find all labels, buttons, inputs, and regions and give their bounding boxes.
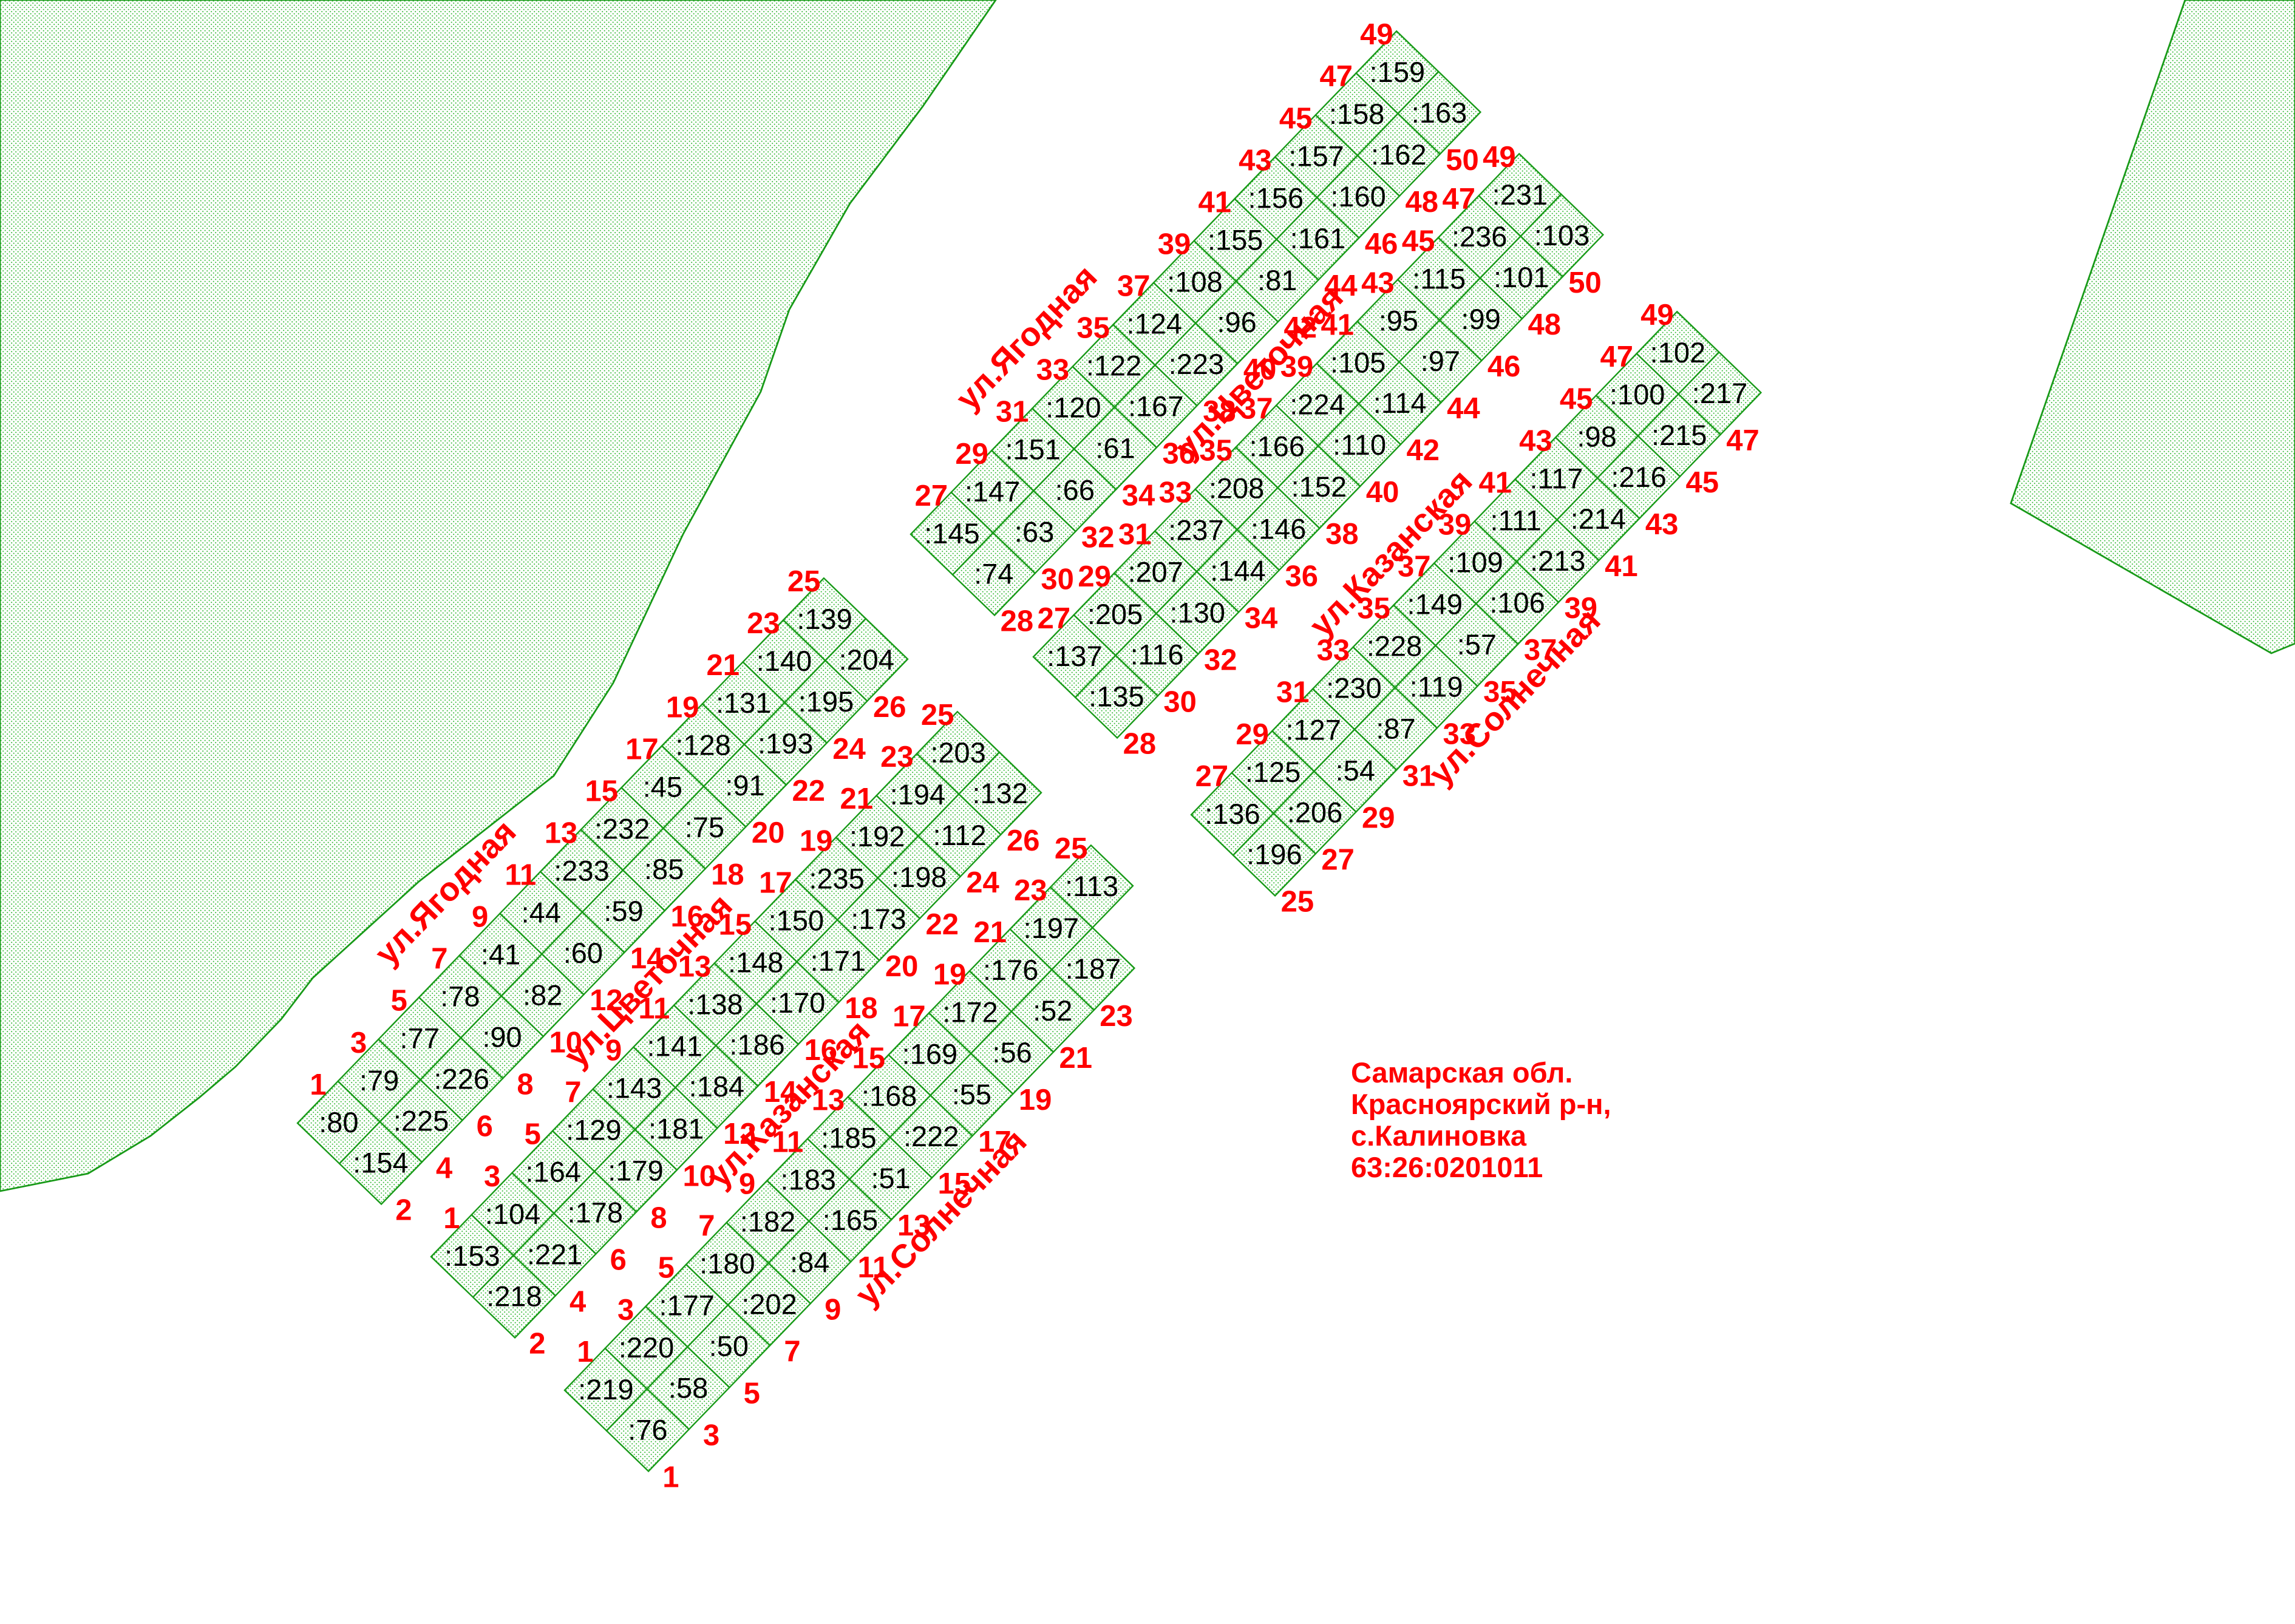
parcel-cadastral-label: :105 [1330, 346, 1385, 378]
parcel-cadastral-label: :79 [359, 1064, 399, 1096]
parcel-cadastral-label: :182 [740, 1206, 795, 1238]
parcel-street-number: 26 [1007, 824, 1040, 857]
parcel-cadastral-label: :136 [1205, 798, 1260, 830]
parcel-cadastral-label: :223 [1169, 348, 1224, 380]
parcel-cadastral-label: :141 [647, 1030, 702, 1062]
parcel-cadastral-label: :125 [1245, 756, 1300, 788]
parcel-cadastral-label: :177 [659, 1289, 714, 1322]
parcel-cadastral-label: :85 [644, 853, 684, 885]
parcel-street-number: 3 [617, 1294, 634, 1327]
parcel-cadastral-label: :128 [675, 729, 730, 761]
parcel-street-number: 32 [1204, 644, 1237, 676]
parcel-cadastral-label: :55 [952, 1078, 991, 1110]
parcel-street-number: 3 [350, 1027, 367, 1059]
parcel-cadastral-label: :178 [568, 1196, 623, 1228]
parcel-street-number: 47 [1319, 60, 1353, 93]
parcel-street-number: 5 [391, 985, 407, 1018]
parcel-street-number: 23 [1014, 874, 1047, 907]
parcel-street-number: 47 [1726, 424, 1759, 457]
parcel-cadastral-label: :81 [1257, 264, 1297, 296]
parcel-cadastral-label: :226 [434, 1062, 489, 1095]
parcel-street-number: 27 [915, 480, 948, 512]
parcel-cadastral-label: :130 [1170, 596, 1225, 628]
parcel-street-number: 27 [1321, 843, 1355, 876]
parcel-cadastral-label: :183 [781, 1164, 836, 1196]
parcel-cadastral-label: :116 [1130, 638, 1184, 670]
parcel-cadastral-label: :127 [1285, 714, 1341, 746]
parcel-street-number: 28 [1001, 605, 1034, 638]
parcel-street-number: 8 [517, 1068, 533, 1101]
parcel-cadastral-label: :176 [983, 954, 1038, 986]
parcel-cadastral-label: :120 [1045, 392, 1101, 424]
parcel-cadastral-label: :186 [729, 1028, 784, 1061]
parcel-cadastral-label: :213 [1530, 545, 1585, 577]
parcel-street-number: 25 [1281, 886, 1314, 919]
parcel-cadastral-label: :220 [619, 1331, 674, 1364]
parcel-cadastral-label: :57 [1457, 628, 1497, 661]
parcel-cadastral-label: :124 [1127, 308, 1182, 340]
parcel-street-number: 4 [436, 1152, 452, 1184]
parcel-street-number: 29 [1236, 718, 1269, 751]
parcel-cadastral-label: :168 [862, 1079, 917, 1112]
parcel-street-number: 1 [310, 1069, 326, 1101]
parcel-cadastral-label: :215 [1651, 419, 1707, 451]
parcel-street-number: 18 [711, 858, 744, 891]
parcel-street-number: 22 [792, 775, 826, 807]
parcel-cadastral-label: :98 [1577, 420, 1616, 452]
parcel-street-number: 34 [1245, 602, 1278, 634]
parcel-cadastral-label: :103 [1534, 219, 1589, 251]
parcel-cadastral-label: :137 [1047, 640, 1102, 672]
parcel-cadastral-label: :108 [1167, 266, 1222, 298]
parcel-cadastral-label: :149 [1407, 588, 1463, 620]
parcel-cadastral-label: :230 [1326, 672, 1381, 704]
parcel-street-number: 6 [477, 1110, 493, 1143]
parcel-cadastral-label: :119 [1410, 670, 1463, 702]
parcel-cadastral-label: :61 [1095, 432, 1135, 464]
legend-line: 63:26:0201011 [1351, 1151, 1543, 1183]
parcel-cadastral-label: :147 [965, 475, 1020, 508]
parcel-cadastral-label: :155 [1208, 223, 1263, 256]
parcel-cadastral-label: :233 [554, 855, 609, 887]
parcel-street-number: 23 [1100, 1000, 1133, 1033]
parcel-cadastral-label: :56 [992, 1036, 1032, 1069]
parcel-street-number: 39 [1158, 228, 1191, 261]
parcel-street-number: 5 [525, 1118, 541, 1151]
parcel-cadastral-label: :164 [525, 1156, 580, 1188]
parcel-street-number: 3 [703, 1419, 719, 1452]
parcel-street-number: 45 [1402, 225, 1435, 257]
parcel-cadastral-label: :102 [1650, 336, 1705, 369]
parcel-cadastral-label: :153 [444, 1240, 500, 1272]
parcel-cadastral-label: :180 [699, 1248, 755, 1280]
parcel-cadastral-label: :169 [902, 1038, 957, 1070]
parcel-cadastral-label: :185 [821, 1122, 876, 1154]
parcel-cadastral-label: :90 [482, 1021, 522, 1053]
parcel-street-number: 19 [1019, 1084, 1052, 1116]
parcel-cadastral-label: :129 [566, 1114, 621, 1146]
parcel-street-number: 27 [1038, 602, 1071, 635]
legend-line: Самарская обл. [1351, 1056, 1572, 1089]
parcel-street-number: 35 [1076, 312, 1110, 345]
parcel-street-number: 29 [955, 438, 988, 471]
parcel-cadastral-label: :99 [1461, 303, 1500, 335]
parcel-cadastral-label: :152 [1291, 471, 1347, 503]
parcel-street-number: 46 [1487, 350, 1521, 383]
parcel-cadastral-label: :162 [1371, 138, 1426, 171]
parcel-cadastral-label: :150 [769, 904, 824, 936]
parcel-cadastral-label: :237 [1168, 514, 1223, 546]
parcel-cadastral-label: :179 [608, 1154, 663, 1186]
parcel-cadastral-label: :112 [933, 819, 987, 851]
parcel-street-number: 23 [747, 607, 780, 640]
parcel-cadastral-label: :131 [716, 687, 771, 719]
parcel-cadastral-label: :63 [1015, 515, 1054, 548]
parcel-street-number: 20 [752, 817, 785, 849]
parcel-cadastral-label: :160 [1330, 180, 1385, 212]
parcel-street-number: 7 [784, 1335, 800, 1368]
parcel-cadastral-label: :204 [838, 644, 894, 676]
parcel-cadastral-label: :138 [687, 988, 743, 1021]
parcel-cadastral-label: :97 [1421, 345, 1460, 377]
parcel-cadastral-label: :170 [770, 987, 825, 1019]
parcel-cadastral-label: :157 [1288, 140, 1344, 172]
parcel-street-number: 31 [996, 396, 1029, 429]
parcel-street-number: 28 [1123, 728, 1157, 761]
parcel-cadastral-label: :41 [481, 939, 520, 971]
parcel-cadastral-label: :236 [1452, 220, 1507, 253]
parcel-cadastral-label: :44 [522, 897, 561, 929]
parcel-cadastral-label: :100 [1610, 378, 1665, 410]
parcel-cadastral-label: :192 [849, 820, 905, 852]
parcel-street-number: 29 [1078, 560, 1111, 593]
parcel-cadastral-label: :135 [1089, 681, 1144, 713]
parcel-cadastral-label: :216 [1611, 461, 1666, 493]
parcel-street-number: 43 [1645, 508, 1679, 541]
parcel-cadastral-label: :91 [725, 769, 764, 801]
parcel-cadastral-label: :217 [1692, 377, 1747, 409]
parcel-cadastral-label: :181 [648, 1112, 704, 1144]
parcel-cadastral-label: :115 [1412, 262, 1466, 294]
parcel-cadastral-label: :187 [1066, 953, 1121, 985]
parcel-cadastral-label: :221 [527, 1238, 582, 1270]
parcel-street-number: 25 [787, 565, 821, 598]
parcel-cadastral-label: :184 [689, 1070, 744, 1102]
parcel-street-number: 47 [1442, 183, 1475, 216]
parcel-street-number: 22 [926, 908, 959, 941]
parcel-cadastral-label: :218 [486, 1280, 542, 1313]
parcel-cadastral-label: :84 [790, 1246, 829, 1278]
parcel-street-number: 2 [529, 1328, 545, 1361]
parcel-cadastral-label: :82 [523, 979, 562, 1011]
parcel-cadastral-label: :96 [1217, 306, 1256, 338]
parcel-street-number: 15 [585, 775, 618, 807]
parcel-street-number: 4 [569, 1285, 586, 1318]
parcel-street-number: 29 [1362, 801, 1395, 834]
parcel-street-number: 45 [1279, 102, 1313, 135]
parcel-street-number: 19 [800, 824, 833, 857]
parcel-cadastral-label: :111 [1490, 504, 1542, 536]
parcel-street-number: 21 [840, 783, 873, 815]
parcel-cadastral-label: :206 [1287, 796, 1342, 828]
parcel-cadastral-label: :214 [1571, 503, 1626, 535]
parcel-street-number: 44 [1447, 392, 1480, 425]
parcel-street-number: 11 [505, 859, 536, 892]
parcel-cadastral-label: :52 [1033, 994, 1072, 1027]
cadastral-map: :14527:14729:15131:12033:12235:12437:108… [0, 0, 2295, 1624]
parcel-street-number: 37 [1117, 270, 1151, 303]
parcel-street-number: 50 [1446, 144, 1479, 177]
parcel-cadastral-label: :165 [823, 1204, 878, 1236]
parcel-street-number: 30 [1163, 685, 1197, 718]
parcel-cadastral-label: :194 [890, 778, 945, 810]
parcel-street-number: 30 [1041, 563, 1074, 596]
parcel-cadastral-label: :146 [1251, 512, 1306, 545]
parcel-cadastral-label: :197 [1024, 912, 1079, 944]
parcel-street-number: 1 [662, 1461, 679, 1494]
parcel-street-number: 42 [1406, 434, 1440, 467]
parcel-cadastral-label: :117 [1529, 462, 1583, 494]
parcel-street-number: 21 [1059, 1042, 1093, 1075]
parcel-cadastral-label: :159 [1370, 56, 1425, 88]
parcel-cadastral-label: :51 [871, 1162, 910, 1194]
parcel-cadastral-label: :151 [1005, 433, 1060, 466]
parcel-street-number: 25 [921, 699, 954, 732]
parcel-street-number: 41 [1605, 550, 1638, 583]
parcel-cadastral-label: :205 [1087, 598, 1143, 630]
parcel-cadastral-label: :143 [607, 1072, 662, 1104]
parcel-street-number: 41 [1198, 186, 1231, 219]
parcel-cadastral-label: :232 [594, 812, 650, 844]
parcel-street-number: 36 [1285, 560, 1318, 593]
parcel-street-number: 24 [966, 866, 999, 899]
parcel-cadastral-label: :87 [1376, 712, 1415, 744]
parcel-cadastral-label: :45 [643, 770, 682, 803]
parcel-street-number: 20 [885, 950, 919, 983]
parcel-street-number: 49 [1360, 18, 1393, 51]
parcel-street-number: 9 [472, 901, 488, 934]
parcel-street-number: 46 [1365, 228, 1398, 260]
parcel-street-number: 45 [1560, 382, 1593, 415]
parcel-cadastral-label: :161 [1290, 222, 1345, 254]
parcel-street-number: 1 [443, 1202, 460, 1235]
parcel-street-number: 32 [1081, 521, 1115, 554]
parcel-cadastral-label: :202 [741, 1288, 797, 1320]
parcel-street-number: 31 [1276, 676, 1310, 709]
parcel-cadastral-label: :75 [685, 811, 724, 843]
parcel-street-number: 31 [1118, 518, 1152, 551]
parcel-cadastral-label: :54 [1336, 754, 1375, 786]
parcel-street-number: 19 [933, 958, 967, 991]
parcel-cadastral-label: :95 [1379, 304, 1418, 336]
parcel-cadastral-label: :145 [924, 517, 979, 549]
parcel-street-number: 17 [759, 866, 792, 899]
parcel-street-number: 38 [1325, 518, 1359, 551]
parcel-cadastral-label: :173 [851, 903, 906, 935]
parcel-street-number: 41 [1478, 466, 1512, 499]
parcel-street-number: 43 [1519, 424, 1552, 457]
parcel-cadastral-label: :76 [628, 1414, 667, 1446]
parcel-street-number: 9 [824, 1293, 841, 1326]
parcel-cadastral-label: :224 [1290, 389, 1345, 421]
parcel-cadastral-label: :58 [668, 1371, 708, 1404]
parcel-street-number: 47 [1600, 341, 1633, 373]
parcel-street-number: 50 [1568, 267, 1602, 299]
parcel-cadastral-label: :139 [797, 603, 852, 635]
parcel-cadastral-label: :231 [1492, 178, 1548, 211]
parcel-cadastral-label: :196 [1246, 838, 1302, 871]
parcel-street-number: 48 [1528, 308, 1562, 341]
parcel-street-number: 21 [706, 649, 739, 682]
parcel-street-number: 1 [577, 1336, 593, 1368]
parcel-cadastral-label: :59 [603, 895, 643, 927]
parcel-cadastral-label: :77 [400, 1022, 440, 1055]
parcel-street-number: 23 [880, 741, 914, 773]
parcel-street-number: 49 [1483, 141, 1516, 174]
parcel-cadastral-label: :156 [1248, 182, 1304, 214]
parcel-cadastral-label: :50 [709, 1330, 749, 1362]
parcel-cadastral-label: :207 [1127, 556, 1183, 588]
parcel-cadastral-label: :222 [903, 1120, 959, 1152]
parcel-cadastral-label: :158 [1329, 98, 1384, 130]
parcel-street-number: 21 [973, 916, 1007, 949]
parcel-street-number: 34 [1122, 479, 1155, 512]
parcel-street-number: 7 [565, 1076, 581, 1109]
parcel-street-number: 43 [1239, 144, 1272, 177]
parcel-cadastral-label: :154 [353, 1147, 408, 1179]
parcel-street-number: 6 [610, 1243, 627, 1276]
parcel-cadastral-label: :122 [1086, 350, 1141, 382]
parcel-cadastral-label: :140 [756, 645, 812, 677]
parcel-street-number: 48 [1406, 186, 1439, 219]
parcel-cadastral-label: :219 [578, 1373, 633, 1405]
legend-line: с.Калиновка [1351, 1119, 1527, 1152]
parcel-cadastral-label: :163 [1412, 97, 1467, 129]
parcel-cadastral-label: :114 [1373, 387, 1427, 419]
parcel-cadastral-label: :172 [942, 996, 998, 1028]
parcel-cadastral-label: :101 [1494, 261, 1549, 293]
parcel-cadastral-label: :166 [1249, 430, 1305, 463]
parcel-cadastral-label: :109 [1447, 546, 1503, 579]
parcel-cadastral-label: :225 [393, 1104, 449, 1136]
parcel-street-number: 19 [666, 691, 699, 724]
parcel-street-number: 5 [658, 1252, 675, 1285]
parcel-cadastral-label: :208 [1209, 472, 1264, 505]
parcel-cadastral-label: :110 [1333, 429, 1386, 461]
parcel-street-number: 33 [1159, 477, 1192, 509]
parcel-street-number: 17 [625, 733, 659, 766]
parcel-cadastral-label: :195 [798, 685, 854, 718]
parcel-street-number: 2 [395, 1194, 412, 1227]
parcel-cadastral-label: :203 [930, 736, 985, 769]
parcel-street-number: 27 [1195, 760, 1229, 793]
parcel-cadastral-label: :66 [1055, 474, 1095, 506]
parcel-cadastral-label: :80 [319, 1106, 358, 1138]
parcel-cadastral-label: :171 [811, 945, 866, 977]
parcel-cadastral-label: :78 [440, 980, 480, 1013]
parcel-street-number: 25 [1055, 832, 1088, 865]
legend-line: Красноярский р-н, [1351, 1088, 1611, 1120]
parcel-cadastral-label: :106 [1489, 586, 1545, 619]
parcel-street-number: 26 [873, 691, 906, 724]
parcel-street-number: 8 [650, 1201, 667, 1234]
parcel-cadastral-label: :60 [563, 937, 603, 969]
parcel-street-number: 49 [1640, 299, 1674, 331]
parcel-street-number: 13 [545, 817, 578, 850]
parcel-street-number: 5 [744, 1377, 760, 1410]
parcel-cadastral-label: :198 [891, 861, 947, 893]
parcel-cadastral-label: :132 [972, 777, 1027, 809]
parcel-cadastral-label: :193 [758, 727, 813, 759]
parcel-street-number: 7 [431, 943, 447, 976]
parcel-street-number: 43 [1361, 267, 1395, 299]
parcel-cadastral-label: :144 [1210, 554, 1265, 586]
parcel-cadastral-label: :235 [809, 862, 864, 894]
parcel-cadastral-label: :148 [728, 946, 783, 978]
parcel-cadastral-label: :74 [974, 558, 1013, 590]
parcel-street-number: 17 [892, 1000, 926, 1033]
parcel-street-number: 40 [1366, 476, 1399, 509]
parcel-street-number: 45 [1686, 466, 1719, 499]
parcel-cadastral-label: :113 [1065, 870, 1118, 902]
parcel-cadastral-label: :228 [1367, 630, 1422, 662]
parcel-cadastral-label: :167 [1128, 390, 1183, 422]
parcel-cadastral-label: :104 [485, 1198, 540, 1230]
parcel-street-number: 33 [1036, 354, 1070, 387]
parcel-street-number: 24 [832, 733, 866, 766]
parcel-street-number: 3 [484, 1160, 500, 1193]
parcel-street-number: 7 [698, 1210, 715, 1243]
